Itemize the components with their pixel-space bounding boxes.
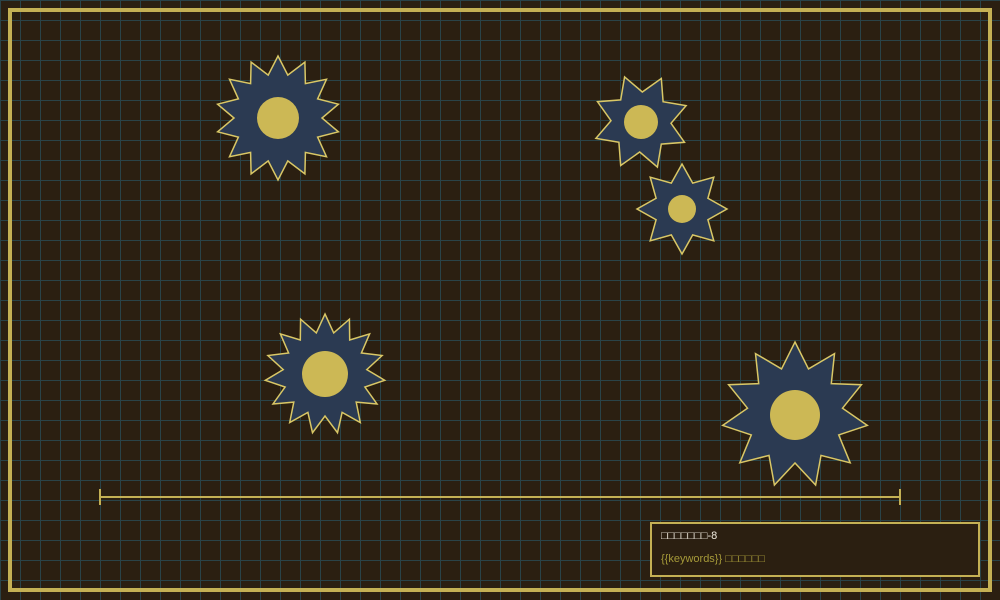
gear-core [624, 105, 658, 139]
gear-core [257, 97, 299, 139]
gear-sprite-gear-3[interactable] [637, 164, 727, 254]
gear-sprite-gear-2[interactable] [596, 77, 686, 167]
info-panel: □□□□□□□-8 {{keywords}} □□□□□□ [650, 522, 980, 577]
info-panel-title: □□□□□□□-8 [661, 530, 969, 543]
gear-core [668, 195, 696, 223]
info-panel-subtitle: {{keywords}} □□□□□□ [661, 553, 969, 566]
sprite-layer [0, 0, 1000, 600]
gear-sprite-gear-5[interactable] [723, 342, 868, 485]
gear-sprite-gear-1[interactable] [218, 56, 339, 180]
gear-sprite-gear-4[interactable] [265, 314, 384, 433]
measure-line [100, 489, 900, 505]
gear-core [770, 390, 820, 440]
gear-core [302, 351, 348, 397]
game-arena: □□□□□□□-8 {{keywords}} □□□□□□ [0, 0, 1000, 600]
